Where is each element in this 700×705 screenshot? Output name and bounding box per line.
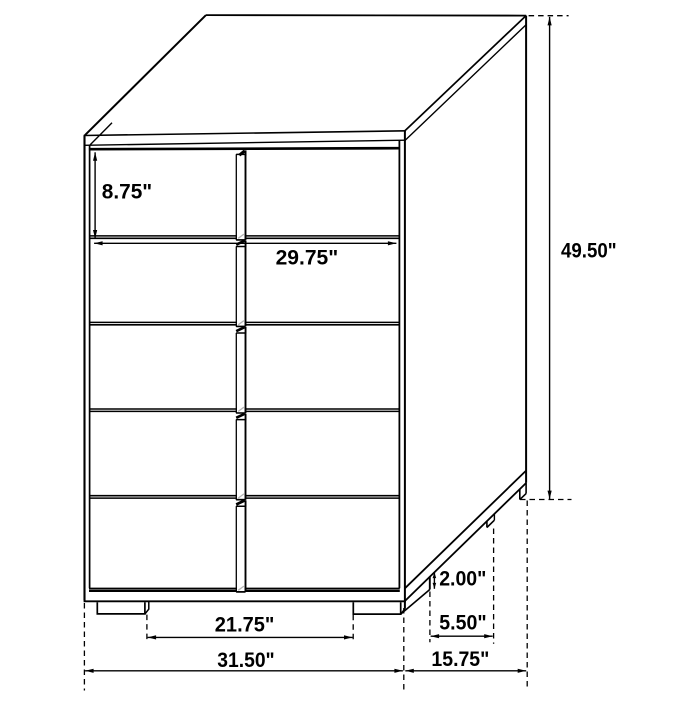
svg-text:29.75": 29.75" — [276, 244, 339, 269]
svg-text:2.00": 2.00" — [439, 566, 486, 591]
svg-text:8.75": 8.75" — [102, 179, 152, 204]
svg-text:21.75": 21.75" — [215, 612, 275, 637]
svg-text:5.50": 5.50" — [439, 610, 486, 635]
svg-text:49.50": 49.50" — [561, 237, 617, 262]
svg-text:15.75": 15.75" — [431, 646, 489, 671]
svg-text:31.50": 31.50" — [217, 647, 274, 672]
